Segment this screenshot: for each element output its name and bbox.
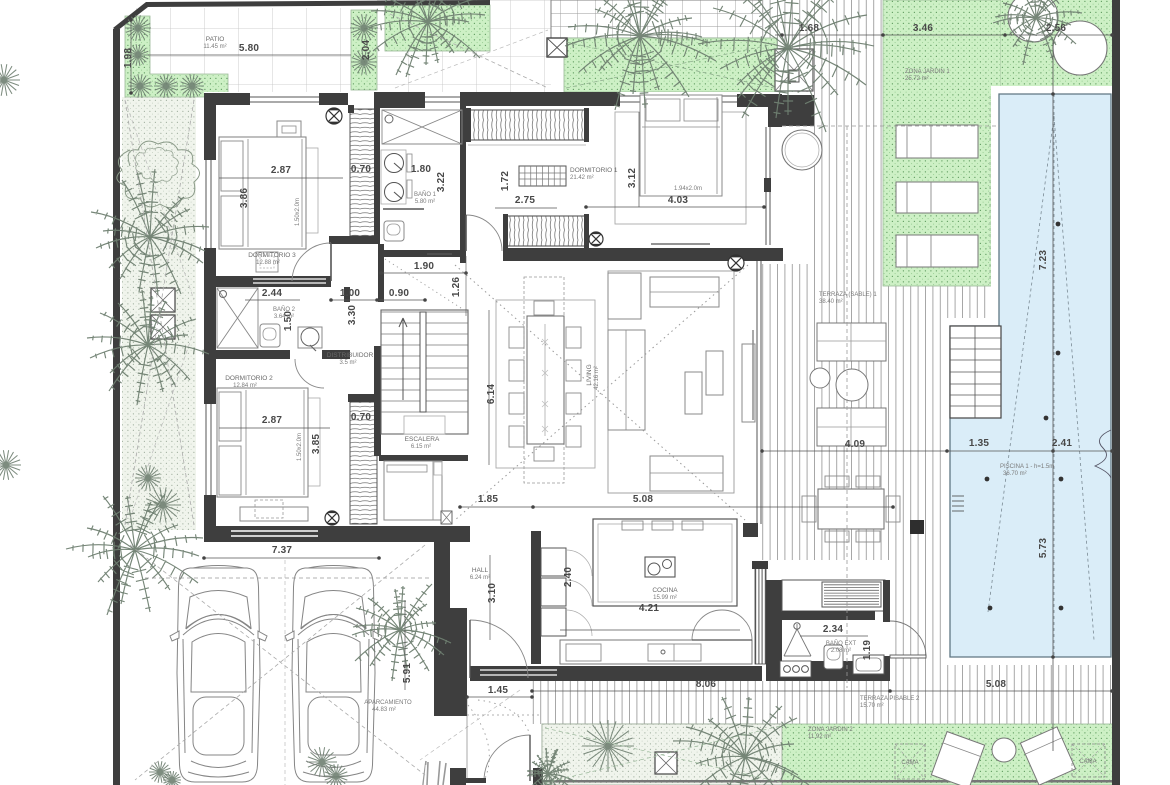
svg-text:0.90: 0.90	[389, 288, 410, 299]
svg-text:1.35: 1.35	[969, 438, 990, 449]
svg-text:42.16 m²: 42.16 m²	[594, 366, 600, 390]
svg-text:ESCALERA: ESCALERA	[405, 436, 440, 443]
svg-text:25.72 m²: 25.72 m²	[905, 76, 929, 82]
svg-text:21.42 m²: 21.42 m²	[570, 175, 594, 181]
svg-text:5.08: 5.08	[986, 679, 1007, 690]
svg-text:1.90: 1.90	[414, 261, 435, 272]
svg-text:3.46: 3.46	[913, 23, 934, 34]
svg-text:1.72: 1.72	[500, 171, 511, 192]
svg-text:1.00: 1.00	[340, 288, 361, 299]
svg-text:12.84 m²: 12.84 m²	[233, 383, 257, 389]
svg-text:3.5 m²: 3.5 m²	[339, 360, 356, 366]
svg-text:1.50x2.0m: 1.50x2.0m	[297, 433, 303, 461]
svg-text:2.04: 2.04	[361, 40, 372, 61]
svg-text:BAÑO 2: BAÑO 2	[273, 306, 296, 313]
svg-text:3.64 m²: 3.64 m²	[274, 314, 294, 320]
svg-text:CAMA: CAMA	[901, 760, 918, 766]
svg-text:3.22: 3.22	[436, 172, 447, 193]
svg-text:3.30: 3.30	[347, 305, 358, 326]
svg-text:2.40: 2.40	[563, 567, 574, 588]
svg-text:2.41: 2.41	[1052, 438, 1073, 449]
svg-text:11.45 m²: 11.45 m²	[203, 44, 226, 50]
svg-text:TERRAZA (SABLE) 1: TERRAZA (SABLE) 1	[819, 292, 877, 298]
svg-text:4.03: 4.03	[668, 195, 689, 206]
svg-text:3.85: 3.85	[311, 434, 322, 455]
svg-text:DISTRIBUIDOR: DISTRIBUIDOR	[327, 352, 374, 359]
svg-text:COCINA: COCINA	[652, 587, 678, 594]
svg-text:5.80: 5.80	[239, 43, 260, 54]
svg-text:2.87: 2.87	[262, 415, 283, 426]
svg-text:3.86: 3.86	[239, 188, 250, 209]
svg-text:15.70 m²: 15.70 m²	[860, 703, 884, 709]
svg-text:ZONA JARDIN 1: ZONA JARDIN 1	[905, 69, 950, 75]
svg-text:0.70: 0.70	[351, 164, 372, 175]
svg-text:0.70: 0.70	[351, 412, 372, 423]
svg-text:3.10: 3.10	[487, 583, 498, 604]
svg-text:5.08: 5.08	[633, 494, 654, 505]
svg-text:1.85: 1.85	[478, 494, 499, 505]
svg-text:1.68: 1.68	[799, 23, 820, 34]
svg-text:2.44: 2.44	[262, 288, 283, 299]
svg-text:5.73: 5.73	[1038, 538, 1049, 559]
svg-text:7.23: 7.23	[1038, 250, 1049, 271]
svg-text:1.19: 1.19	[862, 640, 873, 661]
svg-text:6.15 m²: 6.15 m²	[411, 444, 431, 450]
svg-text:1.45: 1.45	[488, 685, 509, 696]
svg-text:5.80 m²: 5.80 m²	[415, 199, 435, 205]
svg-text:15.99 m²: 15.99 m²	[653, 595, 677, 601]
svg-text:TERRAZA PISABLE 2: TERRAZA PISABLE 2	[860, 696, 920, 702]
svg-text:6.14: 6.14	[486, 384, 497, 405]
svg-text:5.91: 5.91	[402, 663, 413, 684]
svg-text:DORMITORIO 1: DORMITORIO 1	[570, 167, 618, 174]
svg-text:DORMITORIO 2: DORMITORIO 2	[225, 375, 273, 382]
svg-text:8.06: 8.06	[696, 679, 717, 690]
svg-text:36.70 m²: 36.70 m²	[1003, 471, 1027, 477]
svg-text:3.12: 3.12	[627, 168, 638, 189]
svg-text:2.75: 2.75	[515, 195, 536, 206]
svg-text:1.26: 1.26	[451, 277, 462, 298]
svg-text:1.80: 1.80	[411, 164, 432, 175]
svg-text:BAÑO 1: BAÑO 1	[414, 191, 437, 198]
svg-text:38.40 m²: 38.40 m²	[819, 299, 843, 305]
svg-text:11.92 m²: 11.92 m²	[808, 734, 831, 740]
svg-text:7.37: 7.37	[272, 545, 293, 556]
svg-text:PATIO: PATIO	[206, 36, 225, 43]
svg-text:2.08 m²: 2.08 m²	[831, 648, 851, 654]
svg-text:BAÑO EXT: BAÑO EXT	[826, 640, 857, 647]
svg-text:LIVING: LIVING	[586, 364, 593, 385]
svg-text:2.56: 2.56	[1046, 23, 1067, 34]
svg-text:ZONA JARDIN 2: ZONA JARDIN 2	[808, 727, 853, 733]
svg-text:44.83 m²: 44.83 m²	[372, 707, 396, 713]
svg-text:CAMA: CAMA	[1079, 759, 1096, 765]
svg-text:1.98: 1.98	[123, 48, 134, 69]
svg-text:12.88 m²: 12.88 m²	[256, 260, 280, 266]
svg-text:1.50x2.0m: 1.50x2.0m	[295, 198, 301, 226]
svg-text:PISCINA 1 - h=1.5m: PISCINA 1 - h=1.5m	[1000, 464, 1054, 470]
svg-text:1.94x2.0m: 1.94x2.0m	[674, 186, 702, 192]
svg-text:2.34: 2.34	[823, 624, 844, 635]
svg-text:APARCAMIENTO: APARCAMIENTO	[364, 700, 412, 706]
svg-text:2.87: 2.87	[271, 165, 292, 176]
svg-text:4.21: 4.21	[639, 603, 660, 614]
svg-text:6.24 m²: 6.24 m²	[470, 575, 490, 581]
svg-text:4.09: 4.09	[845, 439, 866, 450]
svg-text:DORMITORIO 3: DORMITORIO 3	[248, 252, 296, 259]
svg-text:HALL: HALL	[472, 567, 489, 574]
